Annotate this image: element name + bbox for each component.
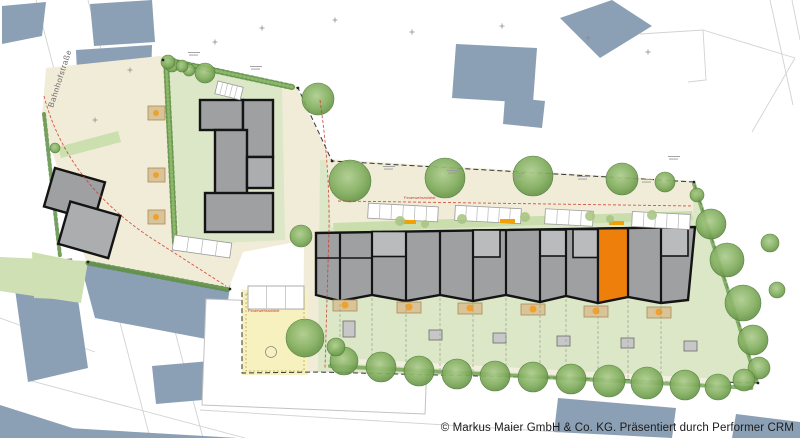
parking-group xyxy=(632,211,691,229)
townhouse-unit-8[interactable] xyxy=(540,226,566,304)
annotation-mark xyxy=(577,176,589,177)
tree xyxy=(442,359,472,389)
parking-stall-row xyxy=(632,211,691,229)
fire-access-label: Feuerwehrzufahrt xyxy=(404,195,436,200)
annotation-mark xyxy=(383,166,395,167)
boundary-point xyxy=(693,181,695,183)
townhouse-unit-6[interactable] xyxy=(473,226,506,304)
building-block[interactable] xyxy=(200,100,243,130)
annotation-mark xyxy=(669,159,678,160)
annotation-mark xyxy=(250,66,262,67)
tree xyxy=(733,369,755,391)
parking-group xyxy=(248,286,304,309)
building-block[interactable] xyxy=(205,193,273,232)
terrace-table-icon xyxy=(153,172,159,178)
terrace-table-icon xyxy=(153,214,159,220)
boundary-point xyxy=(297,87,299,89)
tree xyxy=(425,158,465,198)
garden-shed xyxy=(557,336,570,346)
annotation-mark xyxy=(251,69,260,70)
townhouse-unit-11[interactable] xyxy=(628,226,661,304)
tree xyxy=(705,374,731,400)
townhouse-unit-7[interactable] xyxy=(506,226,540,304)
garden-shed xyxy=(343,321,355,337)
bush xyxy=(647,210,657,220)
tree xyxy=(329,160,371,202)
terrace-table-icon xyxy=(593,308,600,315)
tree xyxy=(518,362,548,392)
annotation-mark xyxy=(188,52,200,53)
tree xyxy=(593,365,625,397)
terrace-table-icon xyxy=(406,304,413,311)
annotation-mark xyxy=(512,173,524,174)
existing-building xyxy=(503,97,545,128)
boundary-point xyxy=(331,160,333,162)
tree xyxy=(606,163,638,195)
existing-building xyxy=(452,44,537,103)
tree xyxy=(480,361,510,391)
annotation-mark xyxy=(513,176,522,177)
tree xyxy=(696,209,726,239)
townhouse-unit-4[interactable] xyxy=(406,226,440,304)
tree xyxy=(670,370,700,400)
tree xyxy=(556,364,586,394)
tree xyxy=(290,225,312,247)
tree xyxy=(366,352,396,382)
existing-building xyxy=(90,0,155,46)
townhouse-unit-9[interactable] xyxy=(566,226,598,304)
tree xyxy=(176,60,188,72)
tree xyxy=(761,234,779,252)
unit-overlays xyxy=(316,226,695,304)
annotation-mark xyxy=(668,156,680,157)
townhouse-unit-12[interactable] xyxy=(661,226,695,304)
garden-shed xyxy=(684,341,697,351)
building-block[interactable] xyxy=(247,157,273,188)
tree xyxy=(655,172,675,192)
tree xyxy=(302,83,334,115)
tree xyxy=(631,367,663,399)
bush xyxy=(606,215,614,223)
building-block[interactable] xyxy=(215,130,247,195)
bush xyxy=(585,211,595,221)
terrace-table-icon xyxy=(530,306,537,313)
townhouse-row xyxy=(316,226,695,304)
tree xyxy=(738,325,768,355)
townhouse-unit-2[interactable] xyxy=(340,226,372,304)
bush xyxy=(421,220,429,228)
tree xyxy=(769,282,785,298)
terrace-table-icon xyxy=(342,302,349,309)
boundary-point xyxy=(162,59,164,61)
annotation-mark xyxy=(189,55,198,56)
terrace-table-icon xyxy=(153,110,159,116)
garden-shed xyxy=(493,333,506,343)
tree xyxy=(690,188,704,202)
tree xyxy=(195,63,215,83)
annotation-mark xyxy=(642,182,651,183)
site-plan-page: Feuerwehrzufahrt Feuerwehrzufahrt Bahnho… xyxy=(0,0,800,438)
bush xyxy=(520,212,530,222)
copyright-text: © Markus Maier GmbH & Co. KG. Präsentier… xyxy=(441,422,794,434)
townhouse-unit-5[interactable] xyxy=(440,226,473,304)
annotation-mark xyxy=(447,170,459,171)
annotation-mark xyxy=(578,179,587,180)
parking-stall-row xyxy=(248,286,304,309)
tree xyxy=(710,243,744,277)
bush xyxy=(457,214,467,224)
boundary-point xyxy=(757,382,759,384)
annotation-mark xyxy=(641,179,653,180)
townhouse-unit-10-selected[interactable] xyxy=(598,226,628,304)
site-plan: Feuerwehrzufahrt Feuerwehrzufahrt Bahnho… xyxy=(0,0,800,438)
tree xyxy=(725,285,761,321)
terrace-table-icon xyxy=(467,305,474,312)
garden-shed xyxy=(621,338,634,348)
boundary-point xyxy=(229,288,231,290)
bush xyxy=(395,216,405,226)
tree xyxy=(404,356,434,386)
tree xyxy=(161,55,175,69)
annotation-mark xyxy=(448,173,457,174)
tree xyxy=(50,143,60,153)
fire-access-label-2: Feuerwehrzufahrt xyxy=(248,308,280,313)
annotation-mark xyxy=(384,169,393,170)
boundary-point xyxy=(87,261,89,263)
tree xyxy=(327,338,345,356)
tree xyxy=(286,319,324,357)
townhouse-unit-3[interactable] xyxy=(372,226,406,304)
terrace-table-icon xyxy=(656,309,663,316)
